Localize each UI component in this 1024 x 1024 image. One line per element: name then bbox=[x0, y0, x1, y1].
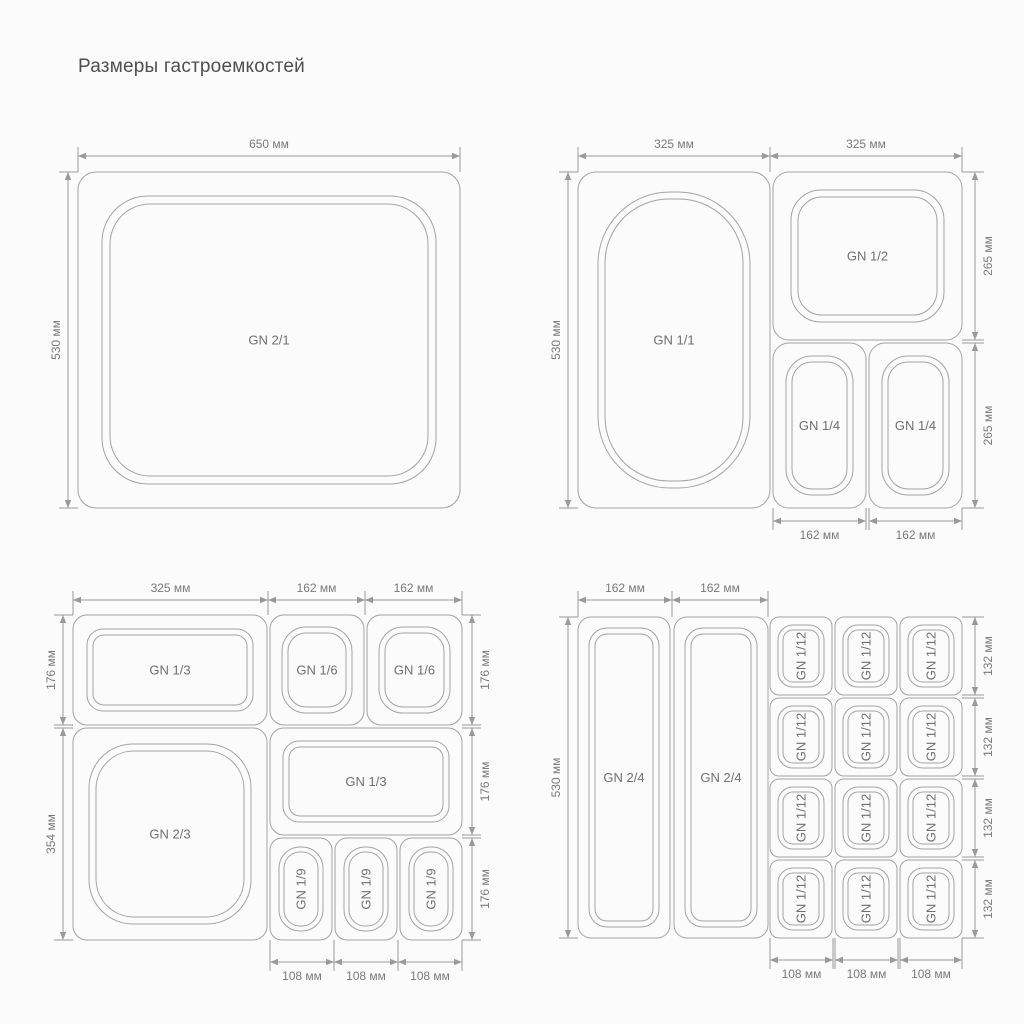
container-label-gn-1-12-r3c1: GN 1/12 bbox=[794, 794, 809, 842]
container-label-gn-2-3: GN 2/3 bbox=[149, 827, 190, 842]
container-label-gn-1-12-r3c2: GN 1/12 bbox=[859, 794, 874, 842]
gastronorm-sizes-diagram: GN 2/1650 мм530 ммGN 1/1GN 1/2GN 1/4GN 1… bbox=[0, 0, 1024, 1024]
dim-h-quadrant-gn11-2-arrow-start bbox=[773, 518, 781, 524]
container-label-gn-1-12-r2c2: GN 1/12 bbox=[859, 713, 874, 761]
container-label-gn-1-12-r4c3: GN 1/12 bbox=[924, 875, 939, 923]
container-label-gn-1-6-a: GN 1/6 bbox=[296, 663, 337, 678]
dim-v-quadrant-gn23-3-arrow-end bbox=[469, 827, 475, 835]
container-label-gn-1-12-r2c3: GN 1/12 bbox=[924, 713, 939, 761]
dim-h-quadrant-gn24-0-label: 162 мм bbox=[605, 581, 645, 595]
container-label-gn-2-1: GN 2/1 bbox=[248, 333, 289, 348]
container-label-gn-1-12-r3c3: GN 1/12 bbox=[924, 794, 939, 842]
dim-v-quadrant-gn21-0-arrow-start bbox=[65, 172, 71, 180]
dim-h-quadrant-gn11-0-label: 325 мм bbox=[654, 137, 694, 151]
dim-v-quadrant-gn23-1-arrow-start bbox=[60, 728, 66, 736]
dim-v-quadrant-gn24-1-arrow-start bbox=[972, 617, 978, 625]
container-label-gn-1-4-a: GN 1/4 bbox=[799, 418, 840, 433]
dim-h-quadrant-gn24-1-arrow-end bbox=[760, 597, 768, 603]
dim-h-quadrant-gn23-1-arrow-start bbox=[268, 597, 276, 603]
dim-v-quadrant-gn24-0-arrow-start bbox=[565, 617, 571, 625]
dim-h-quadrant-gn11-2-arrow-end bbox=[858, 518, 866, 524]
dim-v-quadrant-gn11-2-arrow-end bbox=[972, 500, 978, 508]
dim-v-quadrant-gn11-2-arrow-start bbox=[972, 343, 978, 351]
dim-v-quadrant-gn24-2-arrow-start bbox=[972, 698, 978, 706]
dim-v-quadrant-gn23-4-arrow-start bbox=[469, 838, 475, 846]
dim-h-quadrant-gn23-2-label: 162 мм bbox=[394, 581, 434, 595]
dim-h-quadrant-gn23-2-arrow-start bbox=[365, 597, 373, 603]
dim-h-quadrant-gn21-0-arrow-end bbox=[452, 153, 460, 159]
dim-v-quadrant-gn11-2-label: 265 мм bbox=[981, 406, 995, 446]
dim-v-quadrant-gn23-2-arrow-start bbox=[469, 615, 475, 623]
dim-v-quadrant-gn11-0-label: 530 мм bbox=[549, 320, 563, 360]
dim-v-quadrant-gn11-1-arrow-start bbox=[972, 172, 978, 180]
dim-v-quadrant-gn11-1-arrow-end bbox=[972, 332, 978, 340]
container-label-gn-1-3-top: GN 1/3 bbox=[149, 663, 190, 678]
dim-h-quadrant-gn23-1-label: 162 мм bbox=[297, 581, 337, 595]
container-label-gn-1-12-r4c2: GN 1/12 bbox=[859, 875, 874, 923]
dim-v-quadrant-gn11-1-label: 265 мм bbox=[981, 236, 995, 276]
dim-h-quadrant-gn21-0-label: 650 мм bbox=[249, 137, 289, 151]
dim-h-quadrant-gn23-1-arrow-end bbox=[357, 597, 365, 603]
container-label-gn-1-1: GN 1/1 bbox=[653, 333, 694, 348]
dim-h-quadrant-gn24-2-arrow-end bbox=[825, 957, 833, 963]
dim-h-quadrant-gn23-4-label: 108 мм bbox=[346, 969, 386, 983]
dim-h-quadrant-gn24-1-arrow-start bbox=[672, 597, 680, 603]
dim-v-quadrant-gn23-1-arrow-end bbox=[60, 932, 66, 940]
container-label-gn-2-4-a: GN 2/4 bbox=[603, 770, 644, 785]
dim-h-quadrant-gn11-3-arrow-end bbox=[954, 518, 962, 524]
dim-h-quadrant-gn23-3-arrow-start bbox=[270, 959, 278, 965]
container-label-gn-1-12-r1c3: GN 1/12 bbox=[924, 632, 939, 680]
dim-h-quadrant-gn11-1-label: 325 мм bbox=[846, 137, 886, 151]
dim-h-quadrant-gn24-1-label: 162 мм bbox=[700, 581, 740, 595]
dim-v-quadrant-gn23-1-label: 354 мм bbox=[44, 814, 58, 854]
dim-v-quadrant-gn24-3-label: 132 мм bbox=[981, 798, 995, 838]
dim-v-quadrant-gn24-1-label: 132 мм bbox=[981, 636, 995, 676]
dim-h-quadrant-gn24-0-arrow-end bbox=[664, 597, 672, 603]
dim-v-quadrant-gn11-0-arrow-end bbox=[565, 500, 571, 508]
dim-v-quadrant-gn23-0-label: 176 мм bbox=[44, 650, 58, 690]
dim-h-quadrant-gn23-4-arrow-end bbox=[390, 959, 398, 965]
container-label-gn-2-4-b: GN 2/4 bbox=[700, 770, 741, 785]
dim-v-quadrant-gn23-4-label: 176 мм bbox=[478, 869, 492, 909]
dim-h-quadrant-gn11-0-arrow-start bbox=[578, 153, 586, 159]
container-label-gn-1-4-b: GN 1/4 bbox=[895, 418, 936, 433]
dim-h-quadrant-gn23-5-arrow-start bbox=[398, 959, 406, 965]
container-label-gn-1-9-b: GN 1/9 bbox=[359, 868, 374, 909]
container-label-gn-1-2: GN 1/2 bbox=[847, 249, 888, 264]
container-label-gn-1-9-a: GN 1/9 bbox=[294, 868, 309, 909]
dim-h-quadrant-gn23-5-label: 108 мм bbox=[410, 969, 450, 983]
dim-v-quadrant-gn21-0-arrow-end bbox=[65, 500, 71, 508]
container-label-gn-1-12-r4c1: GN 1/12 bbox=[794, 875, 809, 923]
dim-h-quadrant-gn11-1-arrow-end bbox=[954, 153, 962, 159]
dim-h-quadrant-gn11-1-arrow-start bbox=[770, 153, 778, 159]
dim-v-quadrant-gn24-2-arrow-end bbox=[972, 768, 978, 776]
page: Размеры гастроемкостей GN 2/1650 мм530 м… bbox=[0, 0, 1024, 1024]
dim-h-quadrant-gn11-2-label: 162 мм bbox=[800, 528, 840, 542]
dim-h-quadrant-gn24-2-arrow-start bbox=[770, 957, 778, 963]
container-label-gn-1-9-c: GN 1/9 bbox=[424, 868, 439, 909]
dim-h-quadrant-gn23-3-arrow-end bbox=[326, 959, 334, 965]
dim-v-quadrant-gn23-0-arrow-end bbox=[60, 717, 66, 725]
dim-h-quadrant-gn24-3-arrow-end bbox=[890, 957, 898, 963]
dim-h-quadrant-gn24-4-label: 108 мм bbox=[911, 967, 951, 981]
dim-v-quadrant-gn11-0-arrow-start bbox=[565, 172, 571, 180]
container-label-gn-1-3-bottom: GN 1/3 bbox=[345, 774, 386, 789]
dim-h-quadrant-gn23-3-label: 108 мм bbox=[282, 969, 322, 983]
dim-h-quadrant-gn23-0-arrow-start bbox=[73, 597, 81, 603]
dim-h-quadrant-gn11-3-label: 162 мм bbox=[896, 528, 936, 542]
dim-v-quadrant-gn21-0-label: 530 мм bbox=[49, 320, 63, 360]
dim-h-quadrant-gn24-3-label: 108 мм bbox=[847, 967, 887, 981]
dim-v-quadrant-gn23-3-label: 176 мм bbox=[478, 762, 492, 802]
dim-v-quadrant-gn24-4-arrow-start bbox=[972, 860, 978, 868]
dim-h-quadrant-gn23-2-arrow-end bbox=[454, 597, 462, 603]
dim-h-quadrant-gn24-4-arrow-end bbox=[954, 957, 962, 963]
dim-v-quadrant-gn24-2-label: 132 мм bbox=[981, 717, 995, 757]
dim-v-quadrant-gn24-3-arrow-start bbox=[972, 779, 978, 787]
dim-v-quadrant-gn23-4-arrow-end bbox=[469, 932, 475, 940]
dim-v-quadrant-gn24-4-label: 132 мм bbox=[981, 879, 995, 919]
dim-h-quadrant-gn23-0-label: 325 мм bbox=[151, 581, 191, 595]
dim-v-quadrant-gn23-3-arrow-start bbox=[469, 728, 475, 736]
dim-h-quadrant-gn24-0-arrow-start bbox=[578, 597, 586, 603]
container-label-gn-1-6-b: GN 1/6 bbox=[394, 663, 435, 678]
dim-h-quadrant-gn23-0-arrow-end bbox=[260, 597, 268, 603]
dim-v-quadrant-gn23-2-arrow-end bbox=[469, 717, 475, 725]
dim-h-quadrant-gn24-2-label: 108 мм bbox=[782, 967, 822, 981]
dim-h-quadrant-gn23-4-arrow-start bbox=[334, 959, 342, 965]
dim-v-quadrant-gn24-3-arrow-end bbox=[972, 849, 978, 857]
container-label-gn-1-12-r1c2: GN 1/12 bbox=[859, 632, 874, 680]
dim-h-quadrant-gn24-3-arrow-start bbox=[835, 957, 843, 963]
dim-v-quadrant-gn24-1-arrow-end bbox=[972, 687, 978, 695]
dim-v-quadrant-gn24-4-arrow-end bbox=[972, 930, 978, 938]
dim-v-quadrant-gn24-0-arrow-end bbox=[565, 930, 571, 938]
dim-h-quadrant-gn11-3-arrow-start bbox=[869, 518, 877, 524]
dim-v-quadrant-gn23-2-label: 176 мм bbox=[478, 650, 492, 690]
dim-h-quadrant-gn24-4-arrow-start bbox=[900, 957, 908, 963]
dim-h-quadrant-gn21-0-arrow-start bbox=[78, 153, 86, 159]
container-label-gn-1-12-r2c1: GN 1/12 bbox=[794, 713, 809, 761]
dim-h-quadrant-gn23-5-arrow-end bbox=[454, 959, 462, 965]
dim-h-quadrant-gn11-0-arrow-end bbox=[762, 153, 770, 159]
container-label-gn-1-12-r1c1: GN 1/12 bbox=[794, 632, 809, 680]
dim-v-quadrant-gn23-0-arrow-start bbox=[60, 615, 66, 623]
dim-v-quadrant-gn24-0-label: 530 мм bbox=[549, 758, 563, 798]
